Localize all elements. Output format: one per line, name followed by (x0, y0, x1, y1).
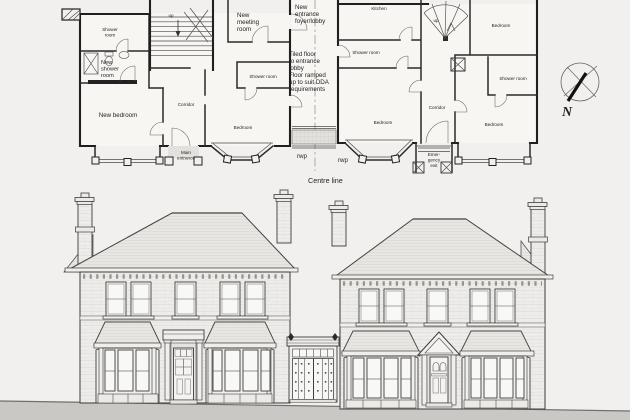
label-tiled-6: requirements (289, 86, 325, 93)
label-emergency-2: gency (428, 158, 441, 163)
left-house-gutter (65, 268, 298, 272)
label-emergency-1: Emer- (428, 152, 441, 157)
label-main-entrance-1: Main (181, 150, 191, 155)
label-north: N (561, 105, 573, 120)
label-main-entrance-2: entrance (177, 156, 195, 161)
front-elevation (0, 190, 630, 420)
link-threshold (290, 400, 336, 403)
label-meeting-2: meeting (237, 19, 260, 26)
label-shower-far-right: Shower room (499, 76, 526, 81)
right-house-bay-left (342, 331, 420, 409)
right-house-bay-right (460, 331, 534, 409)
left-house-bay-right (204, 322, 276, 403)
link-fascia (287, 337, 339, 346)
label-meeting-1: New (237, 12, 250, 19)
left-house-elevation (64, 190, 298, 404)
label-new-shower-2: shower (101, 67, 119, 73)
label-rwp-left: rwp (297, 153, 308, 160)
label-shower-left-inner: Shower room (249, 74, 276, 79)
plan-new-wall (88, 80, 137, 84)
label-foyer-2: entrance (295, 11, 320, 18)
label-shower-room-tl-1: Shower (102, 27, 118, 32)
label-bedroom-far-right: Bedroom (485, 122, 504, 127)
left-house-roof (66, 213, 297, 271)
north-arrow-icon (561, 63, 599, 101)
label-new-bedroom: New bedroom (99, 112, 138, 119)
label-corridor-left: Corridor (178, 102, 195, 107)
floor-plan: up Shower room New shower room New bedro… (62, 0, 599, 185)
left-house-bay-left (94, 322, 161, 403)
label-tiled-2: to entrance (289, 58, 321, 65)
architectural-drawing-sheet: up Shower room New shower room New bedro… (0, 0, 630, 420)
label-tiled-4: Floor ramped (289, 72, 326, 79)
label-up-right: up (433, 18, 439, 23)
label-bedroom-right-front: Bedroom (374, 120, 393, 125)
label-corridor-right: Corridor (429, 105, 446, 110)
label-foyer-3: foyer/lobby (295, 18, 326, 25)
right-house-roof (333, 219, 552, 278)
label-rwp-right: rwp (338, 157, 349, 164)
label-up-left: up (168, 13, 174, 18)
label-tiled-1: Tiled floor (289, 51, 316, 58)
label-meeting-3: room (237, 26, 251, 33)
left-house-chimney-right (274, 190, 293, 243)
right-house-chimney-left (329, 201, 348, 246)
right-house-elevation (329, 198, 553, 409)
right-house-gutter (332, 275, 553, 279)
label-emergency-3: exit (430, 163, 438, 168)
label-tiled-3: lobby (289, 65, 305, 72)
plan-tiled-vestibule (292, 130, 336, 144)
label-shower-right-inner: Shower room (352, 50, 379, 55)
label-tiled-5: up to suit DDA (289, 79, 330, 86)
label-new-shower-3: room (101, 73, 114, 79)
label-kitchen: Kitchen (371, 6, 387, 11)
label-new-shower-1: New (101, 60, 113, 66)
label-shower-room-tl-2: room (105, 33, 116, 38)
label-bedroom-left: Bedroom (234, 125, 253, 130)
label-centre-line: Centre line (308, 176, 343, 185)
label-foyer-1: New (295, 4, 308, 11)
drawing-canvas: up Shower room New shower room New bedro… (0, 0, 630, 420)
label-bedroom-top-right: Bedroom (492, 23, 511, 28)
link-entrance-elevation (287, 333, 339, 403)
